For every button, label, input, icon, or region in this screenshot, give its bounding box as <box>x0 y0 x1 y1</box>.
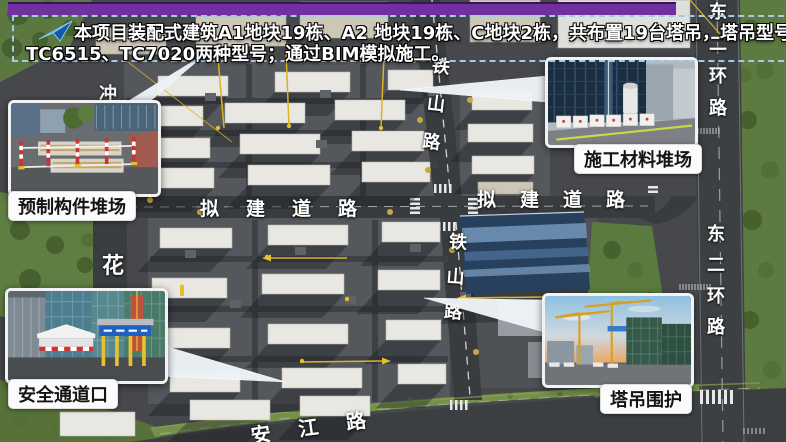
precast-yard-illustration <box>11 103 158 194</box>
summary-banner: 本项目装配式建筑A1地块19栋、A2 地块19栋、C地块2栋，共布置19台塔吊，… <box>12 15 786 62</box>
caption-material-yard: 施工材料堆场 <box>574 144 702 174</box>
banner-text-line2: TC6515、TC7020两种型号；通过BIM模拟施工。 <box>26 40 450 66</box>
pointer-safety-passage <box>158 344 286 382</box>
caption-precast-yard: 预制构件堆场 <box>8 191 136 221</box>
road-label-proposed-west: 拟建道路 <box>200 194 384 221</box>
precast-yard-image <box>8 100 161 197</box>
safety-passage-illustration <box>8 291 165 381</box>
material-yard-image <box>545 57 698 148</box>
internal-lanes <box>126 64 448 402</box>
material-yard-illustration <box>548 60 695 145</box>
caption-safety-passage: 安全通道口 <box>8 379 118 409</box>
safety-passage-image <box>5 288 168 384</box>
slide-accent-bar <box>8 2 676 15</box>
slide-root: 铁山路 铁山路 东二环路 东二环路 拟建道路 拟建道路 花 冲 安江路 <box>0 0 786 442</box>
parcels <box>124 62 598 404</box>
flow-arrow-icon <box>38 20 74 42</box>
road-label-dongerhuan-south: 东二环路 <box>701 224 727 348</box>
road-label-proposed-east: 拟建道路 <box>477 185 649 212</box>
road-label-hua-char: 花 <box>102 248 124 280</box>
crane-enclosure-image <box>542 293 694 388</box>
road-label-anjiang: 安江路 <box>249 400 396 442</box>
building-shadows <box>110 90 590 442</box>
crane-enclosure-illustration <box>545 296 691 385</box>
caption-crane-enclosure: 塔吊围护 <box>600 384 692 414</box>
road-label-tieshan-south: 铁山路 <box>436 231 469 338</box>
road-label-tieshan-north: 铁山路 <box>413 55 453 171</box>
